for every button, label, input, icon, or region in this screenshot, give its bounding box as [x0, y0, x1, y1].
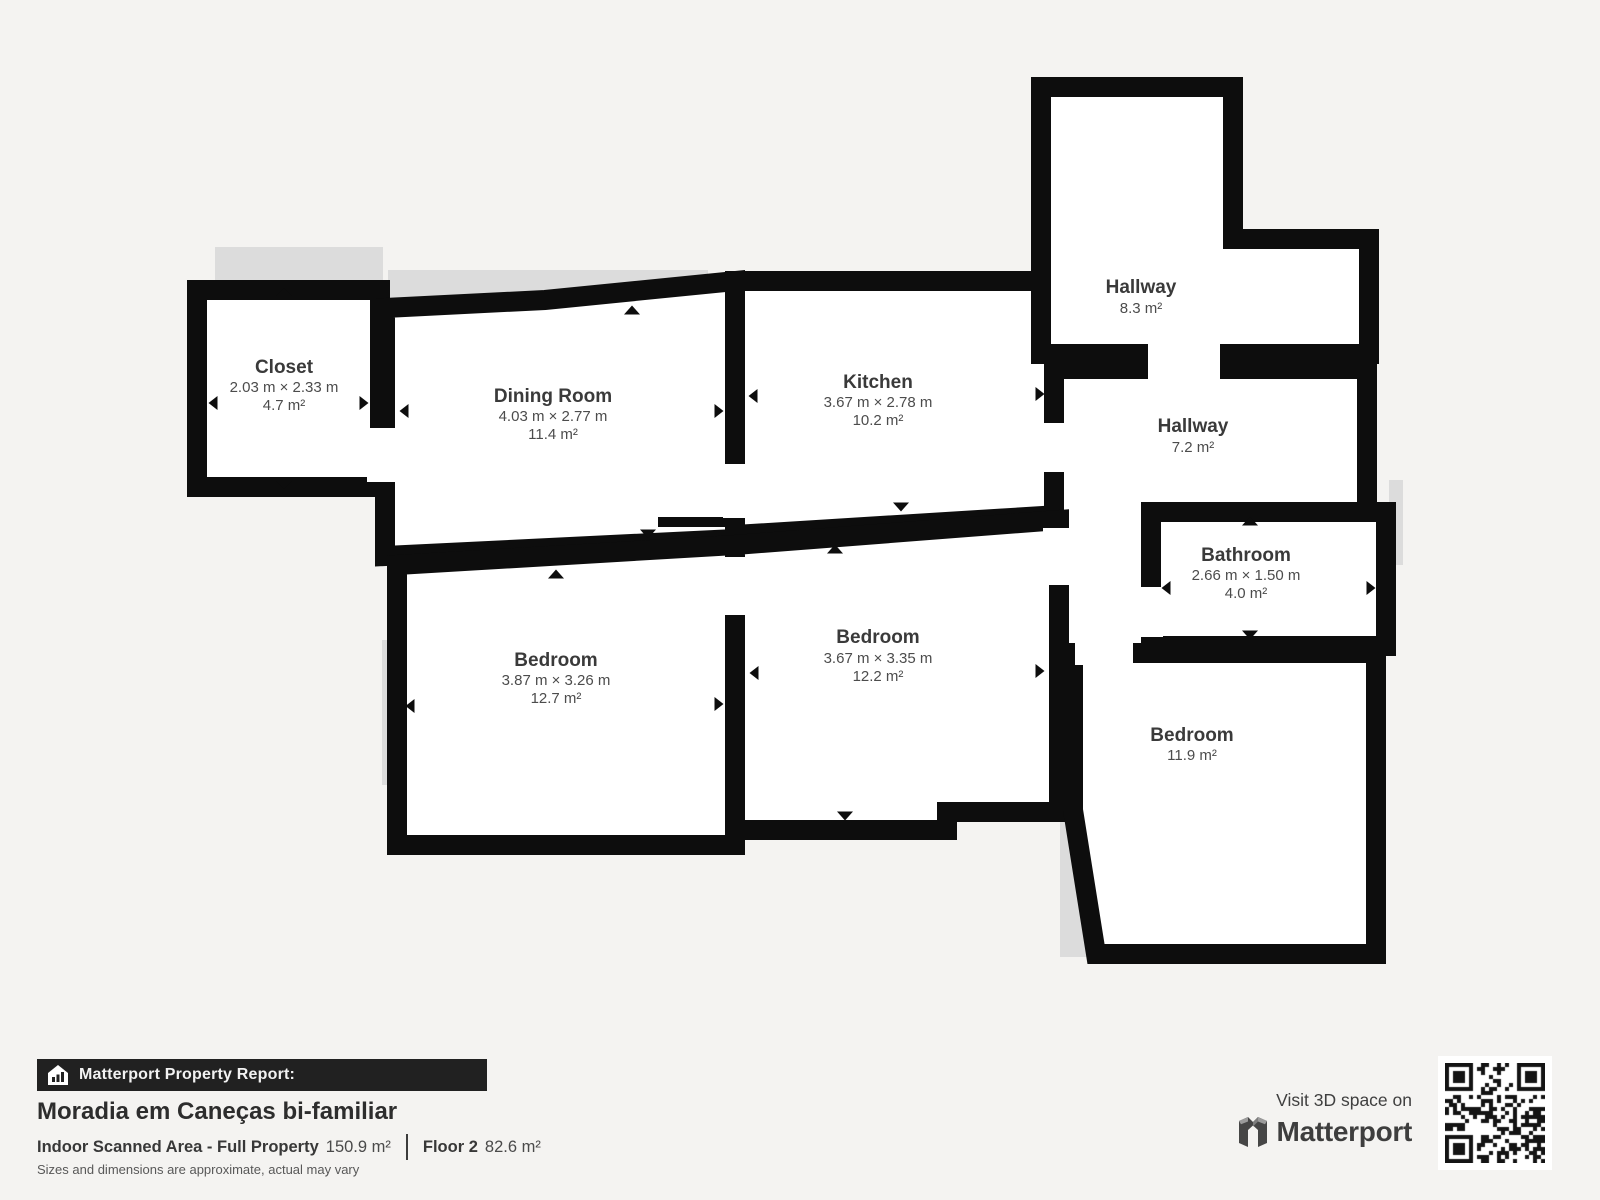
- floor-value: 82.6 m²: [485, 1138, 541, 1157]
- room-label: Hallway: [1106, 277, 1177, 298]
- room-label: Bedroom: [836, 627, 919, 648]
- room-dimensions: 4.03 m × 2.77 m: [499, 408, 608, 425]
- qr-code-canvas: [1445, 1063, 1545, 1163]
- house-report-icon: [47, 1064, 69, 1086]
- floor-label: Floor 2: [423, 1138, 478, 1157]
- area-summary: Indoor Scanned Area - Full Property 150.…: [37, 1134, 541, 1160]
- room-area: 10.2 m²: [853, 412, 904, 429]
- property-title: Moradia em Caneças bi-familiar: [37, 1098, 397, 1126]
- room-bedroom-right: [1073, 653, 1376, 954]
- matterport-logo: Matterport: [1100, 1116, 1412, 1148]
- qr-code: [1438, 1056, 1552, 1170]
- report-banner: Matterport Property Report:: [37, 1059, 487, 1091]
- room-area: 12.7 m²: [531, 690, 582, 707]
- room-label: Kitchen: [843, 372, 913, 393]
- room-area: 11.4 m²: [528, 426, 578, 443]
- room-dimensions: 2.66 m × 1.50 m: [1192, 567, 1301, 584]
- rooms: [197, 87, 1386, 954]
- floor-plan: Closet 2.03 m × 2.33 m 4.7 m² Dining Roo…: [0, 0, 1600, 1010]
- room-label: Hallway: [1158, 416, 1229, 437]
- scanned-area-label: Indoor Scanned Area - Full Property: [37, 1138, 319, 1157]
- scanned-area-value: 150.9 m²: [326, 1138, 391, 1157]
- report-banner-label: Matterport Property Report:: [79, 1066, 295, 1084]
- visit-3d-text: Visit 3D space on: [1100, 1090, 1412, 1111]
- cta-block: Visit 3D space on Matterport: [1100, 1090, 1412, 1148]
- room-area: 4.7 m²: [263, 397, 306, 414]
- room-dimensions: 3.87 m × 3.26 m: [502, 672, 611, 689]
- room-area: 4.0 m²: [1225, 585, 1268, 602]
- room-dimensions: 3.67 m × 2.78 m: [824, 394, 933, 411]
- room-label: Bedroom: [1150, 725, 1233, 746]
- room-label: Bathroom: [1201, 545, 1291, 566]
- room-area: 11.9 m²: [1167, 747, 1217, 764]
- disclaimer-text: Sizes and dimensions are approximate, ac…: [37, 1162, 359, 1177]
- room-area: 8.3 m²: [1120, 300, 1163, 317]
- wall-spur: [658, 517, 733, 527]
- room-dimensions: 2.03 m × 2.33 m: [230, 379, 339, 396]
- room-area: 7.2 m²: [1172, 439, 1215, 456]
- room-dimensions: 3.67 m × 3.35 m: [824, 650, 933, 667]
- room-label: Closet: [255, 357, 314, 378]
- matterport-wordmark: Matterport: [1277, 1116, 1412, 1148]
- room-area: 12.2 m²: [853, 668, 904, 685]
- room-label: Bedroom: [514, 650, 597, 671]
- divider: [406, 1134, 408, 1160]
- matterport-m-icon: [1238, 1116, 1268, 1148]
- room-label: Dining Room: [494, 386, 612, 407]
- room-hallway-upper: [1041, 87, 1369, 354]
